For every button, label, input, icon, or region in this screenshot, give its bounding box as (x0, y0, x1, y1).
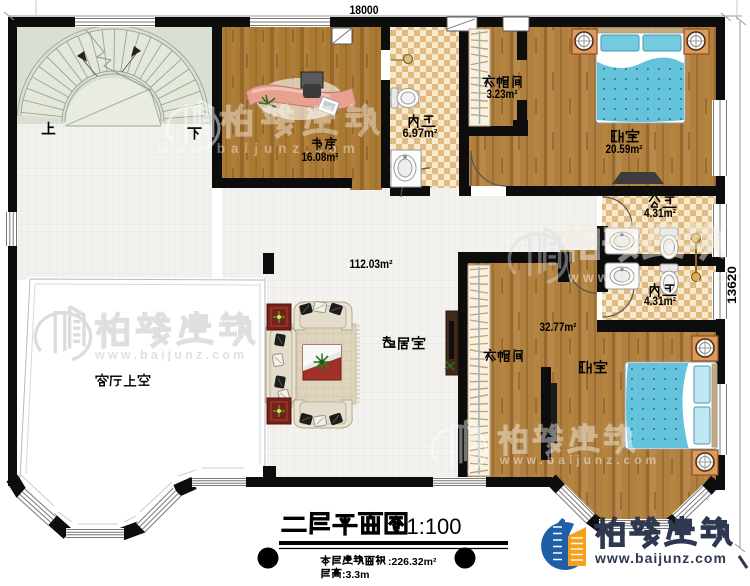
svg-text:www.baijunz.com: www.baijunz.com (94, 348, 247, 362)
svg-text:4.31m²: 4.31m² (644, 296, 676, 308)
svg-text:112.03m²: 112.03m² (350, 259, 393, 271)
svg-text:1:100: 1:100 (406, 514, 461, 539)
svg-text:13620: 13620 (727, 266, 739, 304)
svg-text:4.31m²: 4.31m² (644, 208, 676, 220)
svg-text:20.59m²: 20.59m² (606, 144, 643, 156)
svg-text::3.3m: :3.3m (342, 569, 369, 581)
svg-text::226.32m²: :226.32m² (388, 556, 437, 568)
svg-text:32.77m²: 32.77m² (540, 322, 577, 334)
svg-text:3.23m²: 3.23m² (487, 89, 518, 101)
svg-text:6.97m²: 6.97m² (403, 128, 438, 140)
svg-text:www.baijunz.com: www.baijunz.com (594, 550, 727, 566)
svg-text:www.baijunz.com: www.baijunz.com (499, 453, 660, 467)
svg-text:18000: 18000 (350, 5, 379, 17)
svg-text:16.08m²: 16.08m² (302, 152, 339, 164)
svg-text:www.baijunz.com: www.baijunz.com (567, 269, 745, 285)
